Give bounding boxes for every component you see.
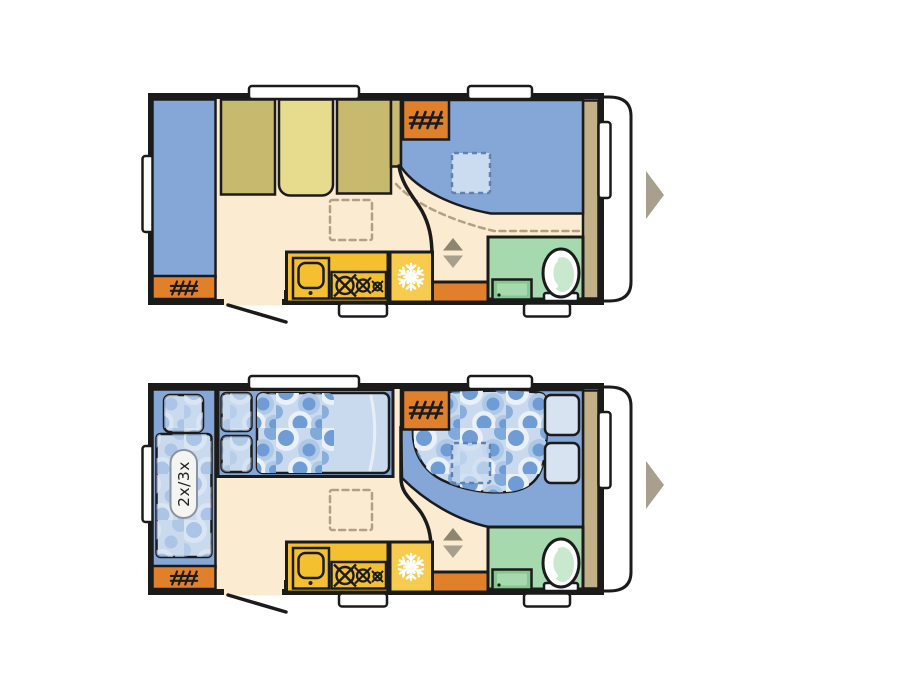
roof-vent bbox=[452, 153, 490, 193]
side-seat bbox=[153, 100, 216, 278]
next-arrow-icon[interactable] bbox=[646, 171, 664, 219]
seat-cushion bbox=[279, 100, 333, 196]
front-double-bed bbox=[218, 390, 393, 477]
pillow bbox=[545, 443, 579, 483]
pillow bbox=[545, 395, 579, 435]
roof-vent bbox=[452, 443, 490, 483]
heater bbox=[153, 276, 216, 299]
heater bbox=[403, 100, 449, 140]
seat-side-panel bbox=[391, 100, 401, 167]
heater bbox=[403, 390, 449, 430]
floorplans-canvas: 2x/3x bbox=[0, 0, 906, 680]
floorplan-night: 2x/3x bbox=[143, 376, 665, 612]
seat-backrest bbox=[337, 100, 391, 194]
caravan-floorplan-page: 2x/3x bbox=[0, 0, 906, 680]
bunk-label: 2x/3x bbox=[175, 461, 193, 507]
floorplan-day bbox=[143, 86, 665, 322]
seat-backrest bbox=[221, 100, 275, 195]
bunk-bed: 2x/3x bbox=[157, 395, 212, 557]
heater bbox=[153, 566, 216, 589]
next-arrow-icon[interactable] bbox=[646, 461, 664, 509]
